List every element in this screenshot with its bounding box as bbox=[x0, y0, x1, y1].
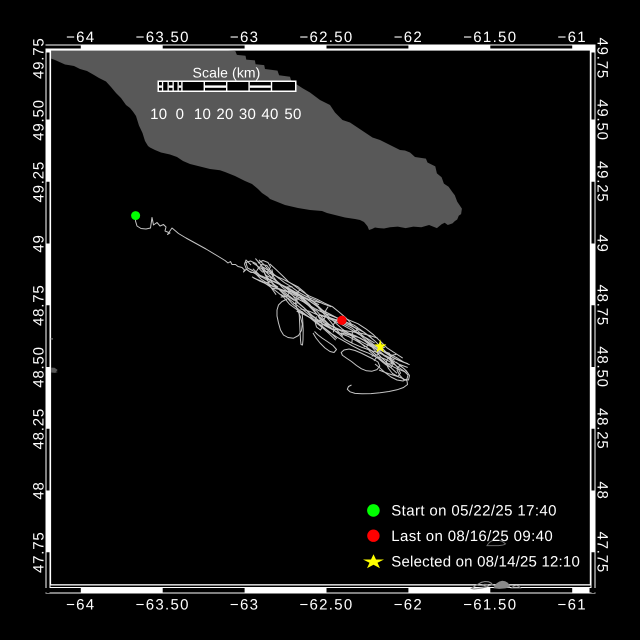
svg-text:−61: −61 bbox=[558, 597, 587, 614]
svg-text:40: 40 bbox=[261, 106, 278, 123]
svg-text:−62: −62 bbox=[394, 597, 423, 614]
svg-text:−62.50: −62.50 bbox=[299, 597, 353, 614]
svg-text:−61.50: −61.50 bbox=[463, 29, 517, 46]
svg-text:20: 20 bbox=[216, 106, 233, 123]
svg-text:30: 30 bbox=[239, 106, 256, 123]
svg-text:49: 49 bbox=[594, 234, 611, 252]
svg-text:Selected on 08/14/25 12:10: Selected on 08/14/25 12:10 bbox=[391, 554, 580, 571]
svg-text:49.25: 49.25 bbox=[31, 161, 48, 203]
svg-text:Scale (km): Scale (km) bbox=[193, 65, 261, 81]
svg-text:48.50: 48.50 bbox=[31, 346, 48, 388]
svg-text:−62: −62 bbox=[394, 29, 423, 46]
svg-text:48.25: 48.25 bbox=[594, 408, 611, 450]
svg-text:49.50: 49.50 bbox=[594, 99, 611, 141]
svg-text:48.75: 48.75 bbox=[594, 284, 611, 326]
svg-text:−64: −64 bbox=[66, 597, 95, 614]
svg-text:−61: −61 bbox=[558, 29, 587, 46]
svg-text:50: 50 bbox=[284, 106, 301, 123]
svg-text:−63: −63 bbox=[230, 597, 259, 614]
svg-text:−61.50: −61.50 bbox=[463, 597, 517, 614]
svg-text:48: 48 bbox=[31, 481, 48, 499]
svg-text:48.75: 48.75 bbox=[31, 284, 48, 326]
svg-text:−62.50: −62.50 bbox=[299, 29, 353, 46]
svg-text:48.25: 48.25 bbox=[31, 408, 48, 450]
svg-text:49.75: 49.75 bbox=[594, 37, 611, 79]
svg-text:49.50: 49.50 bbox=[31, 99, 48, 141]
svg-text:10: 10 bbox=[150, 106, 167, 123]
svg-text:0: 0 bbox=[176, 106, 185, 123]
svg-text:−63.50: −63.50 bbox=[136, 29, 190, 46]
svg-text:−63: −63 bbox=[230, 29, 259, 46]
svg-text:49.75: 49.75 bbox=[31, 37, 48, 79]
svg-text:49.25: 49.25 bbox=[594, 161, 611, 203]
svg-text:49: 49 bbox=[31, 234, 48, 252]
svg-text:Last on 08/16/25 09:40: Last on 08/16/25 09:40 bbox=[391, 528, 553, 545]
svg-text:Start on 05/22/25 17:40: Start on 05/22/25 17:40 bbox=[391, 503, 557, 520]
svg-text:48: 48 bbox=[594, 481, 611, 499]
svg-text:−63.50: −63.50 bbox=[136, 597, 190, 614]
svg-text:47.75: 47.75 bbox=[31, 531, 48, 573]
svg-text:47.75: 47.75 bbox=[594, 531, 611, 573]
svg-text:10: 10 bbox=[194, 106, 211, 123]
svg-text:−64: −64 bbox=[66, 29, 95, 46]
svg-text:48.50: 48.50 bbox=[594, 346, 611, 388]
